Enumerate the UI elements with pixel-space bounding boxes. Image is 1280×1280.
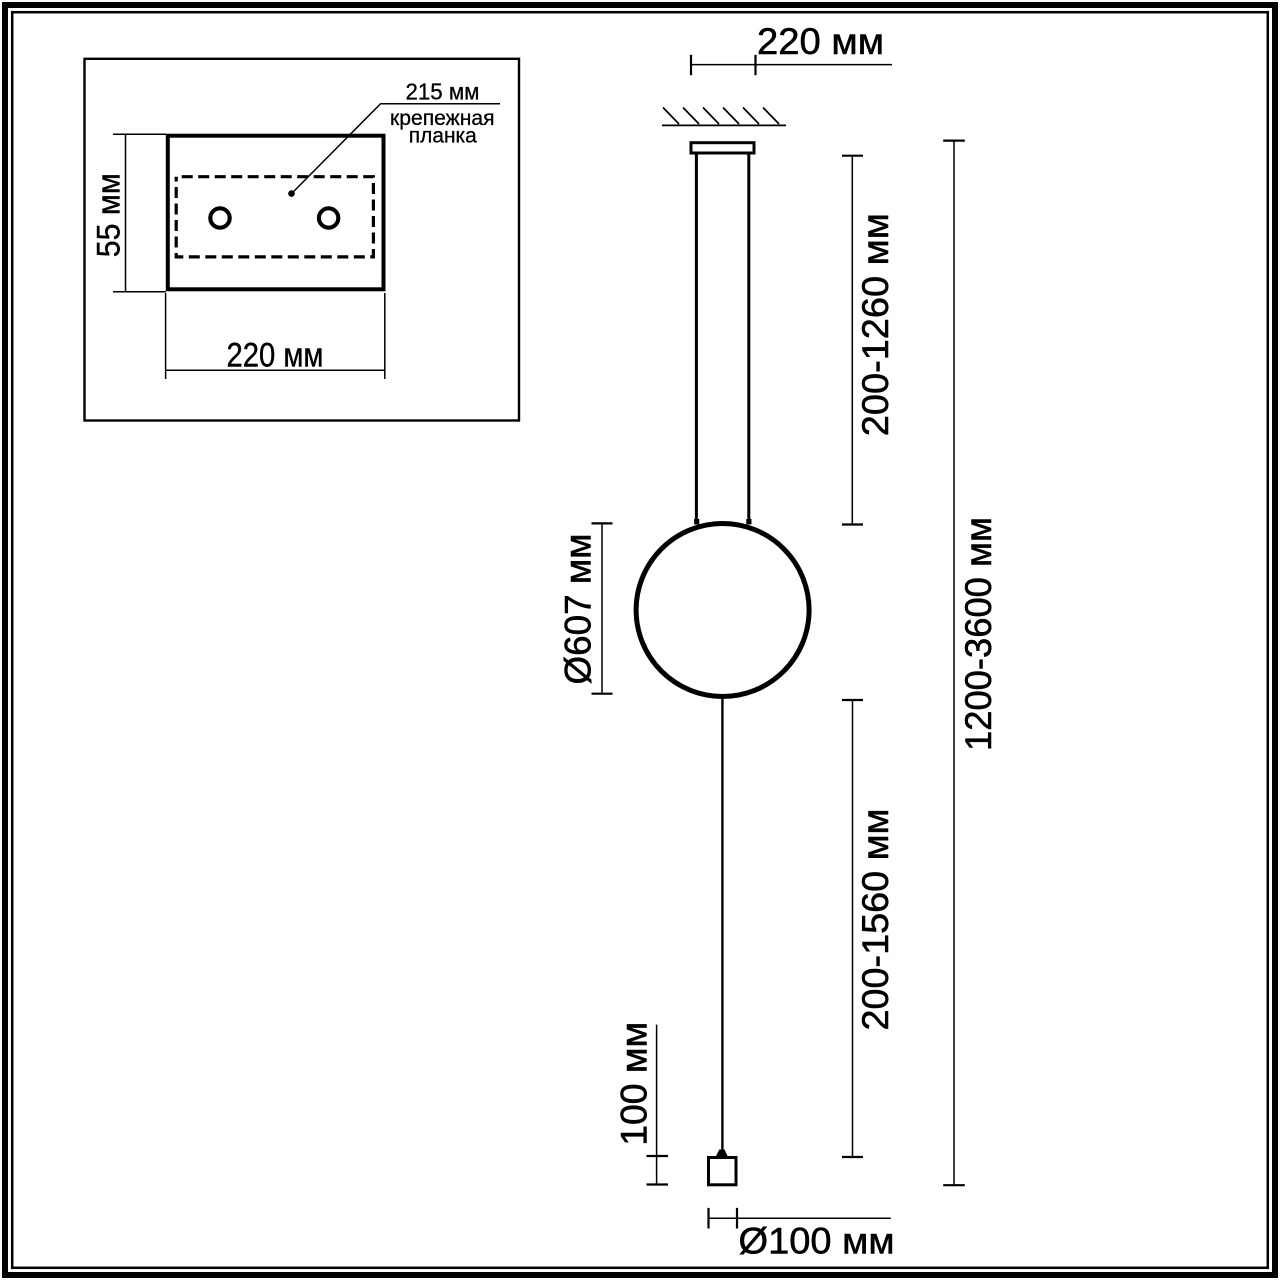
svg-text:Ø100 мм: Ø100 мм bbox=[739, 1220, 895, 1261]
svg-text:220 мм: 220 мм bbox=[757, 20, 884, 62]
svg-text:200-1260 мм: 200-1260 мм bbox=[855, 213, 896, 436]
svg-text:220 мм: 220 мм bbox=[227, 336, 324, 374]
svg-text:55 мм: 55 мм bbox=[91, 173, 127, 257]
svg-text:1200-3600 мм: 1200-3600 мм bbox=[958, 517, 999, 751]
svg-text:200-1560 мм: 200-1560 мм bbox=[855, 809, 896, 1031]
svg-text:планка: планка bbox=[409, 124, 477, 148]
svg-text:215 мм: 215 мм bbox=[406, 78, 480, 104]
svg-text:Ø607 мм: Ø607 мм bbox=[558, 534, 599, 685]
svg-text:100 мм: 100 мм bbox=[614, 1022, 655, 1146]
